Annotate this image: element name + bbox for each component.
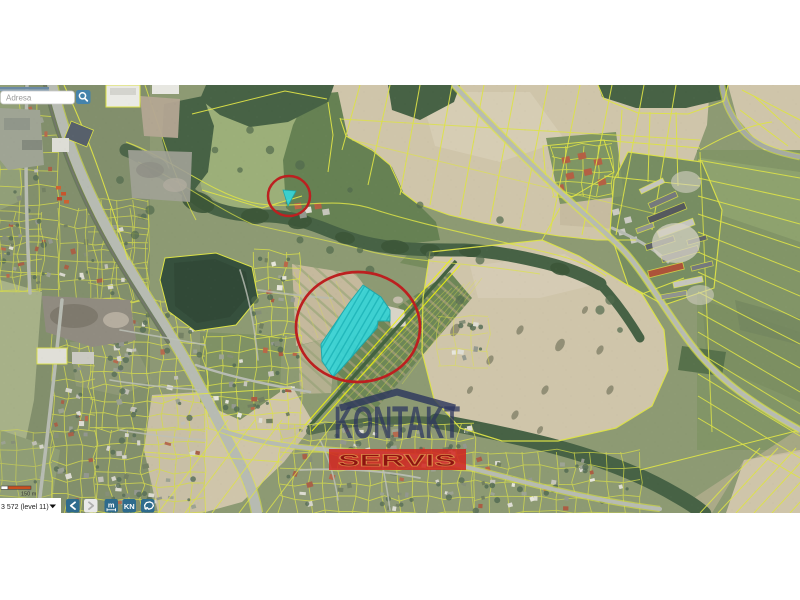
- svg-text:3 572 (level 11): 3 572 (level 11): [1, 504, 49, 511]
- svg-text:m: m: [108, 501, 115, 510]
- svg-text:150 m: 150 m: [21, 492, 37, 498]
- svg-text:SERVIS: SERVIS: [338, 451, 456, 470]
- svg-text:KN: KN: [124, 502, 135, 511]
- svg-text:KONTAKT: KONTAKT: [334, 397, 460, 448]
- svg-text:Adresa: Adresa: [6, 94, 32, 103]
